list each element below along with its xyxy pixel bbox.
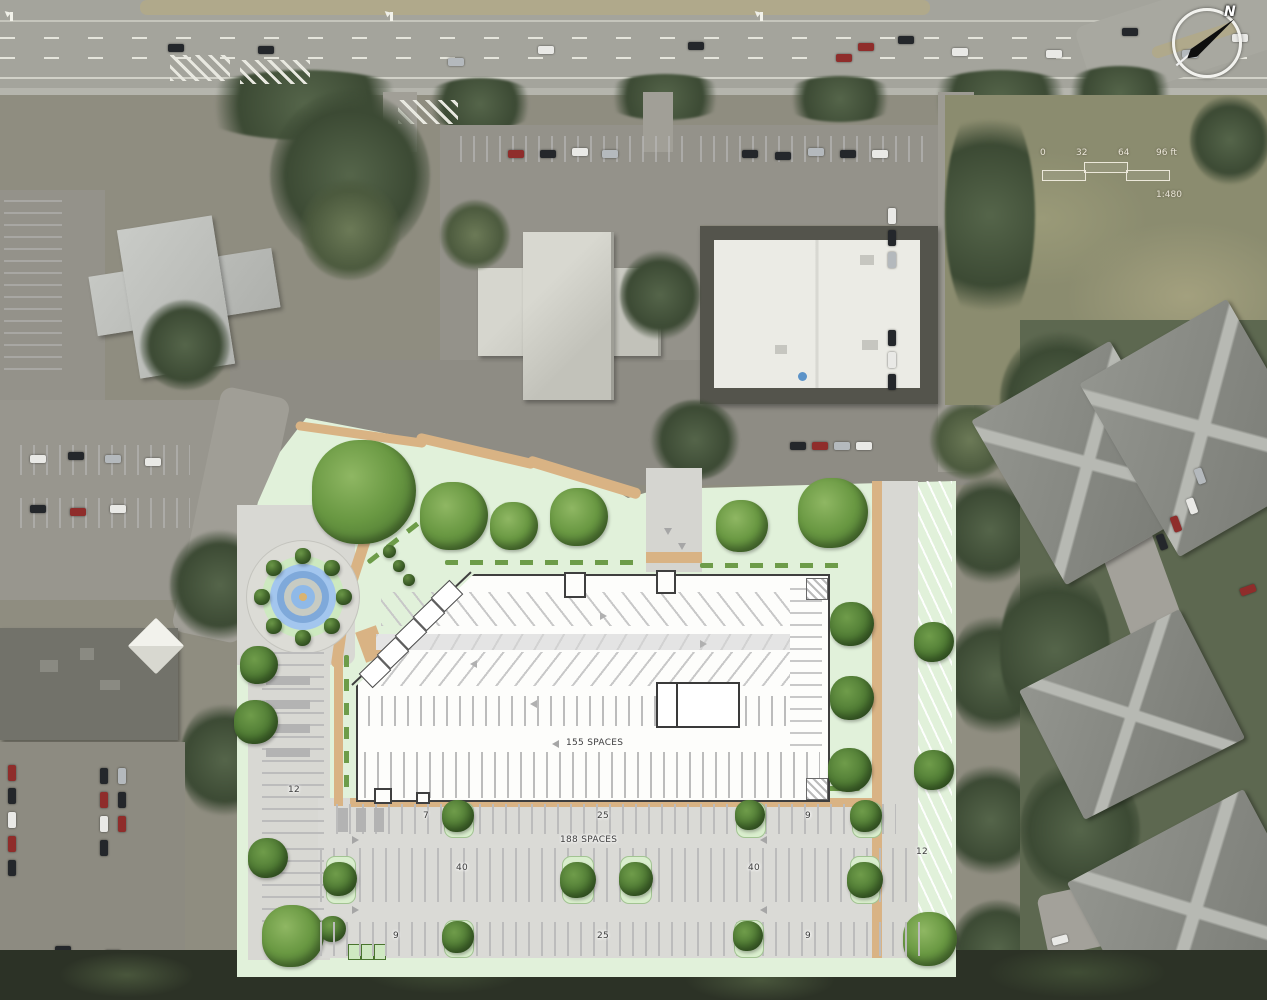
hedge-row (344, 655, 349, 795)
car (840, 150, 856, 158)
angled-stall-striping (376, 652, 821, 686)
car (100, 768, 108, 784)
tree-cluster (440, 200, 510, 270)
car (790, 442, 806, 450)
car (834, 442, 850, 450)
north-label: N (1224, 4, 1236, 20)
parking-ramp-divider (676, 684, 678, 726)
car (952, 48, 968, 56)
aisle-arrow (760, 906, 767, 914)
corner-notch-hatch (806, 778, 828, 800)
building-bump (656, 570, 676, 594)
stall-striping (368, 696, 818, 726)
rooftop-unit (100, 680, 120, 690)
car (30, 505, 46, 513)
stall-count-label: 40 (456, 864, 468, 873)
car (742, 150, 758, 158)
stall-count-label: 12 (916, 848, 928, 857)
tree-cluster (620, 250, 700, 340)
car (100, 792, 108, 808)
car (168, 44, 184, 52)
car (145, 458, 161, 466)
scale-tick-label: 32 (1076, 148, 1087, 158)
stall-count-label: 25 (597, 812, 609, 821)
corner-notch-hatch (806, 578, 828, 600)
car (110, 505, 126, 513)
tree-cluster (945, 95, 1035, 335)
car (898, 36, 914, 44)
aisle-arrow (352, 836, 359, 844)
car (258, 46, 274, 54)
aisle-arrow (760, 836, 767, 844)
scale-tick-label: 64 (1118, 148, 1129, 158)
car (8, 788, 16, 804)
car (888, 230, 896, 246)
stall-striping (4, 200, 62, 380)
reserved-stall (266, 748, 310, 757)
scale-bar-segment (1084, 162, 1128, 173)
car (602, 150, 618, 158)
scale-ratio-label: 1:480 (1156, 190, 1182, 200)
aisle-arrow (352, 906, 359, 914)
scale-bar: 0 32 64 96 ft 1:480 (1032, 148, 1197, 203)
shrub (393, 560, 405, 572)
car (68, 452, 84, 460)
walkway-crossing (646, 552, 702, 563)
stall-striping (20, 498, 190, 528)
entrance-arrow (664, 528, 672, 535)
scale-tick-label: 96 ft (1156, 148, 1177, 158)
stall-count-label: 9 (805, 812, 811, 821)
label-arrow (552, 740, 559, 748)
car (856, 442, 872, 450)
scale-bar-segment (1126, 170, 1170, 181)
highway-median (140, 0, 930, 15)
car (448, 58, 464, 66)
car (118, 768, 126, 784)
car (100, 840, 108, 856)
north-arrow: N (1172, 8, 1242, 78)
walkway (334, 658, 343, 806)
flow-arrow (600, 612, 607, 620)
building-bump (564, 572, 586, 598)
tree-cluster (1190, 95, 1267, 185)
flow-arrow (700, 640, 707, 648)
car (888, 374, 896, 390)
drive-aisle-spine (376, 634, 821, 650)
car (888, 330, 896, 346)
car (775, 152, 791, 160)
rooftop-unit (860, 255, 874, 265)
hedge-row (700, 563, 850, 568)
car (858, 43, 874, 51)
car (836, 54, 852, 62)
car (888, 352, 896, 368)
stall-count-label: 9 (393, 932, 399, 941)
scale-bar-segment (1042, 170, 1086, 181)
parking-lot-pavement (0, 742, 185, 958)
stall-striping (790, 588, 822, 748)
car (538, 46, 554, 54)
shrub (403, 574, 415, 586)
car (118, 792, 126, 808)
car (118, 816, 126, 832)
stall-striping (364, 752, 820, 798)
tree-cluster (300, 180, 400, 280)
lane-divider-line (0, 20, 1267, 22)
accessible-stall (338, 808, 348, 832)
car (8, 812, 16, 828)
car (8, 836, 16, 852)
stall-count-label: 40 (748, 864, 760, 873)
hedge-row (445, 560, 635, 565)
car (540, 150, 556, 158)
car (30, 455, 46, 463)
car (105, 455, 121, 463)
car (8, 860, 16, 876)
lot-spaces-label: 188 SPACES (560, 836, 617, 845)
stall-count-label: 9 (805, 932, 811, 941)
car (1122, 28, 1138, 36)
car (872, 150, 888, 158)
flow-arrow (530, 700, 537, 708)
rooftop-unit (862, 340, 878, 350)
stall-count-label: 7 (423, 812, 429, 821)
building-spaces-label: 155 SPACES (566, 739, 623, 748)
parking-ramp (656, 682, 740, 728)
stall-count-label: 12 (288, 786, 300, 795)
building-roof (523, 232, 614, 400)
rooftop-unit (80, 648, 94, 660)
pool-dot (798, 372, 807, 381)
accessible-stall (374, 808, 384, 832)
pavement-hatch-marking (170, 55, 230, 81)
rooftop-unit (775, 345, 787, 354)
car (70, 508, 86, 516)
car (888, 252, 896, 268)
tree-cluster (140, 300, 230, 390)
entrance-arrow (678, 543, 686, 550)
stall-count-label: 25 (597, 932, 609, 941)
car (812, 442, 828, 450)
scale-tick-label: 0 (1040, 148, 1046, 158)
east-stall-striping (918, 481, 952, 958)
car (508, 150, 524, 158)
car (100, 816, 108, 832)
car (1046, 50, 1062, 58)
site-plan-aerial-image: 155 SPACES 188 SPACES 7 25 9 40 40 9 25 … (0, 0, 1267, 1000)
stall-striping (336, 804, 896, 834)
car (572, 148, 588, 156)
pavement-hatch-marking (240, 60, 310, 84)
accessible-stall (356, 808, 366, 832)
tree-line (780, 76, 900, 122)
car (8, 765, 16, 781)
car (808, 148, 824, 156)
stair-bump (416, 792, 430, 804)
stall-striping (320, 922, 920, 956)
car (888, 208, 896, 224)
flow-arrow (470, 660, 477, 668)
fountain-center (299, 593, 307, 601)
stair-bump (374, 788, 392, 804)
car (688, 42, 704, 50)
rooftop-unit (40, 660, 58, 672)
